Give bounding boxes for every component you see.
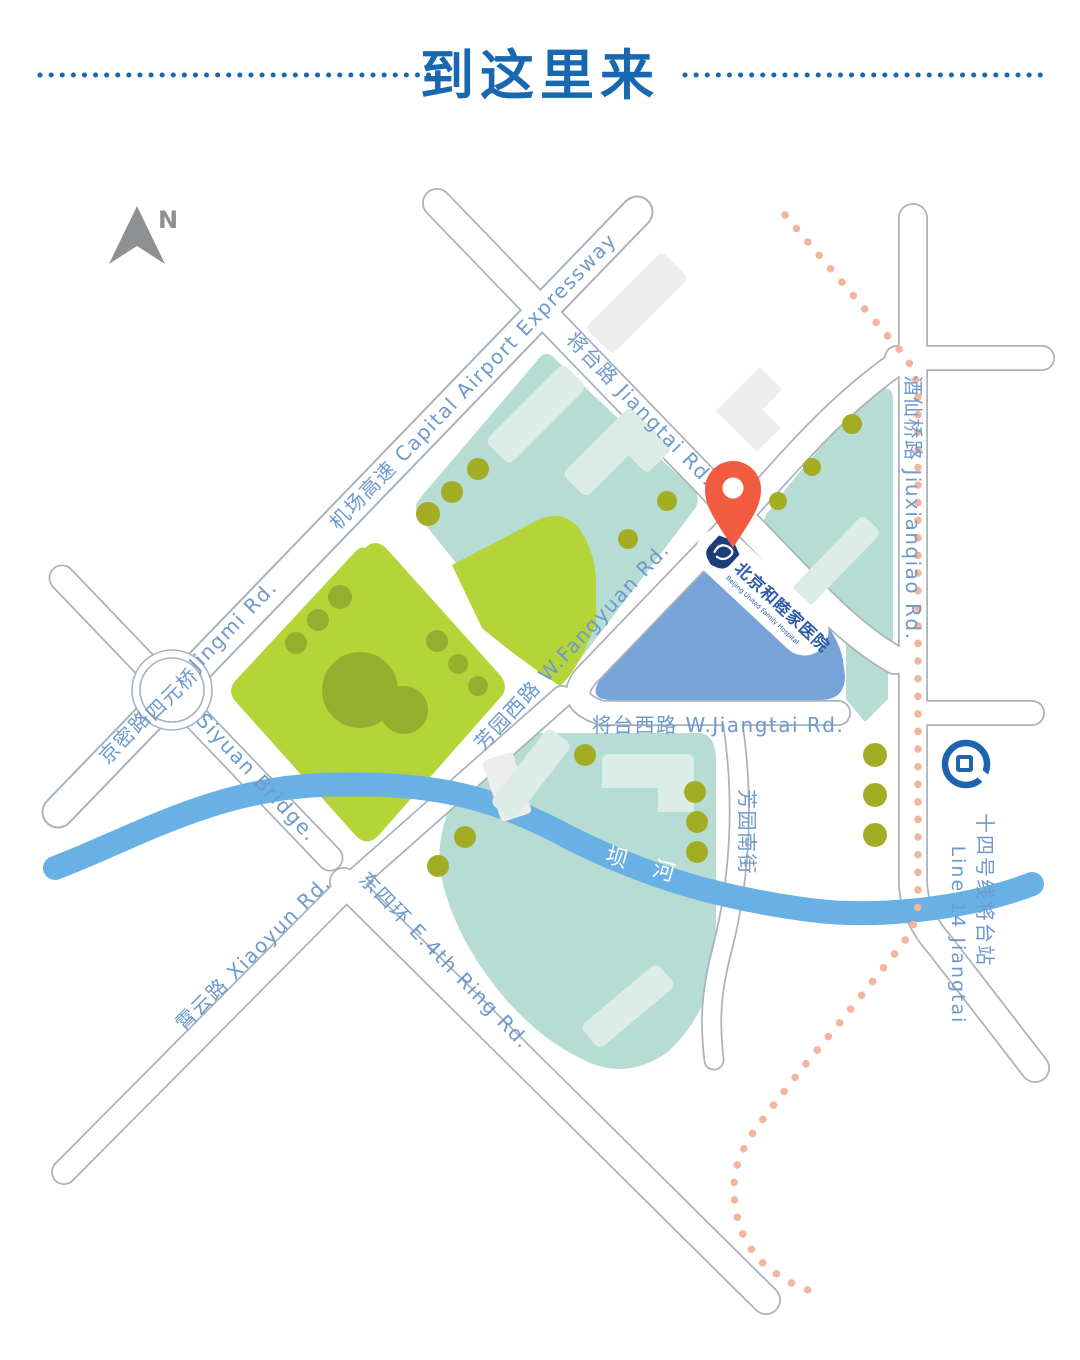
page-title: 到这里来 xyxy=(420,44,660,107)
label-w-jiangtai-rd: 将台西路 W.Jiangtai Rd. xyxy=(592,713,845,737)
map-page: 到这里来 N 机场高速 Capital Airport Expressway 将… xyxy=(0,0,1080,1360)
north-arrow-icon xyxy=(109,206,165,264)
hospital-location-map: 到这里来 N 机场高速 Capital Airport Expressway 将… xyxy=(0,0,1080,1360)
compass: N xyxy=(109,206,178,264)
gray-building-l xyxy=(716,367,801,452)
header: 到这里来 xyxy=(40,44,1042,107)
label-xiaoyun-rd: 霄云路 Xiaoyun Rd. xyxy=(171,871,336,1036)
north-label: N xyxy=(158,206,178,234)
label-station-cn: 十四号线将台站 xyxy=(973,813,997,967)
label-jiuxianqiao-rd: 酒仙桥路 Jiuxianqiao Rd. xyxy=(901,376,925,641)
label-fangyuan-south-st: 芳园南街 xyxy=(735,789,759,875)
subway-station-logo-icon xyxy=(945,743,989,785)
label-station-en: Line 14 Jiangtai xyxy=(947,846,969,1025)
